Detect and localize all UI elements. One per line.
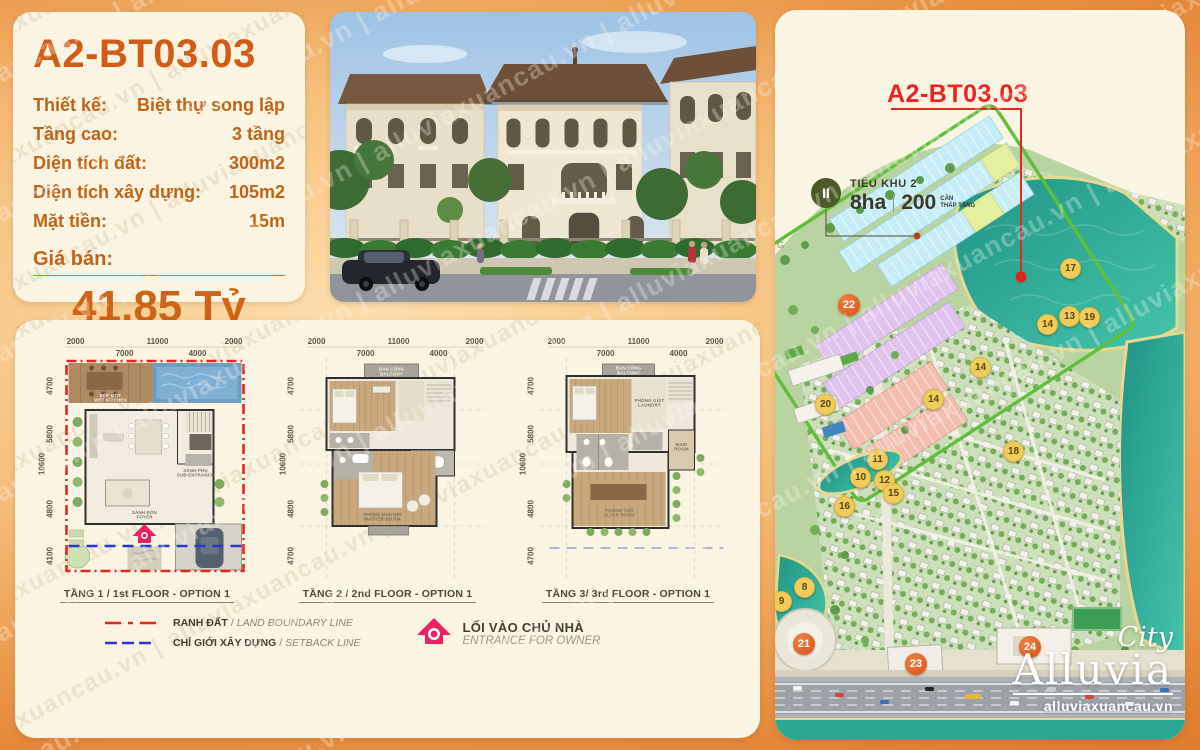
map-callout-label: A2-BT03.03: [887, 80, 1028, 109]
spec-label: Tầng cao:: [33, 120, 118, 149]
floor-3-caption: TẦNG 3/ 3rd FLOOR - OPTION 1: [542, 588, 714, 603]
spec-value: Biệt thự song lập: [137, 91, 285, 120]
zone-units-note: CĂN: [940, 196, 975, 203]
floor-2-caption: TẦNG 2 / 2nd FLOOR - OPTION 1: [299, 588, 477, 603]
svg-text:4700: 4700: [286, 547, 295, 565]
floor-plan-3-block: 2000 11000 2000 7000 4000 4700 5800 1060…: [514, 334, 742, 603]
spec-row-land-area: Diện tích đất: 300m2: [33, 149, 285, 178]
svg-text:4800: 4800: [46, 500, 55, 518]
svg-text:7000: 7000: [597, 349, 615, 358]
svg-text:5800: 5800: [46, 425, 55, 443]
svg-text:11000: 11000: [387, 337, 409, 346]
svg-text:2000: 2000: [548, 337, 566, 346]
legend-separator: /: [231, 617, 234, 629]
plan-legend: RANH ĐẤT / LAND BOUNDARY LINE CHỈ GIỚI X…: [103, 617, 742, 657]
map-marker-18: 18: [1003, 441, 1024, 462]
svg-text:4700: 4700: [527, 547, 536, 565]
spec-label: Mặt tiền:: [33, 207, 107, 236]
svg-text:WET KITCHEN: WET KITCHEN: [94, 398, 127, 403]
map-marker-8: 8: [794, 577, 815, 598]
balcony-top: BAN CÔNG BALCONY: [364, 364, 418, 378]
map-marker-17: 17: [1060, 258, 1081, 279]
svg-text:4100: 4100: [46, 547, 55, 565]
legend-setback-en: SETBACK LINE: [285, 637, 360, 649]
setback-line-sample: [103, 638, 159, 648]
map-marker-16: 16: [834, 496, 855, 517]
floor-plan-3: 2000 11000 2000 7000 4000 4700 5800 1060…: [514, 334, 742, 586]
property-code-title: A2-BT03.03: [33, 32, 285, 77]
logo-name-text: Alluvia: [1013, 650, 1173, 690]
legend-boundary-en: LAND BOUNDARY LINE: [237, 617, 353, 629]
floor-plan-1-block: 2000 11000 2000 7000 4000 4700 5800 1060…: [33, 334, 261, 603]
zone-divider: [893, 194, 894, 212]
svg-text:5800: 5800: [527, 425, 536, 443]
svg-text:4700: 4700: [286, 377, 295, 395]
svg-text:4000: 4000: [189, 349, 207, 358]
map-marker-20: 20: [815, 394, 836, 415]
svg-text:BALCONY: BALCONY: [617, 371, 640, 376]
deck-wet-kitchen: BẾP ƯỚT WET KITCHEN: [69, 363, 153, 403]
svg-text:4000: 4000: [670, 349, 688, 358]
floor-1-caption: TẦNG 1 / 1st FLOOR - OPTION 1: [60, 588, 234, 603]
entrance-arrow-icon: [133, 524, 157, 543]
map-marker-13: 13: [1059, 306, 1080, 327]
svg-text:7000: 7000: [356, 349, 374, 358]
svg-text:FOYER: FOYER: [136, 515, 153, 520]
canal: [775, 719, 1185, 740]
map-marker-23: 23: [905, 653, 927, 675]
svg-text:ROOM: ROOM: [674, 447, 689, 452]
alluvia-city-logo: City Alluvia alluviaxuancau.vn: [1013, 626, 1173, 714]
map-marker-10: 10: [850, 467, 871, 488]
spec-value: 3 tầng: [232, 120, 285, 149]
svg-text:2000: 2000: [465, 337, 483, 346]
pool: [153, 363, 242, 403]
svg-text:ALTAR ROOM: ALTAR ROOM: [604, 513, 635, 518]
zone-roman-numeral: II: [811, 178, 841, 208]
spec-row-design: Thiết kế: Biệt thự song lập: [33, 91, 285, 120]
legend-separator: /: [279, 637, 282, 649]
driveway: [128, 546, 162, 570]
balcony-bottom: [368, 526, 408, 535]
villa-photo-panel: [330, 12, 756, 302]
map-marker-14b: 14: [970, 357, 991, 378]
masterplan-map-panel: A2-BT03.03 G II TIỂU KHU 2 8ha 200 CĂN T…: [775, 10, 1185, 740]
map-marker-14c: 14: [923, 389, 944, 410]
spec-label: Diện tích xây dựng:: [33, 178, 201, 207]
map-marker-22: 22: [838, 294, 860, 316]
map-road-label: G: [777, 240, 784, 250]
callout-dot: [1016, 272, 1027, 283]
svg-text:SUB-ENTRANCE: SUB-ENTRANCE: [177, 473, 215, 478]
map-marker-11: 11: [867, 449, 888, 470]
spec-value: 105m2: [229, 178, 285, 207]
svg-text:7000: 7000: [116, 349, 134, 358]
spec-row-built-area: Diện tích xây dựng: 105m2: [33, 178, 285, 207]
floor-plan-2: 2000 11000 2000 7000 4000 4700 5800 1060…: [274, 334, 502, 586]
spec-value: 15m: [249, 207, 285, 236]
svg-text:4700: 4700: [527, 377, 536, 395]
floor-plan-2-block: 2000 11000 2000 7000 4000 4700 5800 1060…: [274, 334, 502, 603]
svg-text:10600: 10600: [278, 452, 287, 475]
legend-setback: CHỈ GIỚI XÂY DỰNG / SETBACK LINE: [103, 637, 360, 649]
legend-boundary: RANH ĐẤT / LAND BOUNDARY LINE: [103, 617, 360, 629]
price-label: Giá bán:: [33, 248, 285, 276]
floor-plans-panel: alluviaxuancau.vn | alluviaxuancau.vn | …: [15, 320, 760, 738]
legend-entrance-en: ENTRANCE FOR OWNER: [462, 635, 600, 647]
spec-row-frontage: Mặt tiền: 15m: [33, 207, 285, 236]
legend-entrance-vi: LỐI VÀO CHỦ NHÀ: [462, 620, 600, 635]
svg-text:11000: 11000: [147, 337, 169, 346]
floor-plan-1: 2000 11000 2000 7000 4000 4700 5800 1060…: [33, 334, 261, 586]
svg-text:5800: 5800: [286, 425, 295, 443]
zone-area: 8ha: [850, 191, 886, 215]
spec-label: Thiết kế:: [33, 91, 107, 120]
svg-text:10600: 10600: [519, 452, 528, 475]
map-marker-21: 21: [793, 633, 815, 655]
zone-name: TIỂU KHU 2: [850, 178, 975, 190]
property-info-panel: alluviaxuancau.vn | alluviaxuancau.vn | …: [13, 12, 305, 302]
svg-text:4800: 4800: [286, 500, 295, 518]
zone-units-note: THẤP TẦNG: [940, 203, 975, 210]
map-marker-15: 15: [883, 483, 904, 504]
spec-label: Diện tích đất:: [33, 149, 147, 178]
spec-value: 300m2: [229, 149, 285, 178]
svg-text:MASTER BD.RM: MASTER BD.RM: [364, 517, 401, 522]
villa-photo-illustration: [330, 12, 756, 302]
boundary-line-sample: [103, 618, 159, 628]
spec-row-floors: Tầng cao: 3 tầng: [33, 120, 285, 149]
logo-site-url: alluviaxuancau.vn: [1013, 693, 1173, 714]
map-marker-14: 14: [1037, 314, 1058, 335]
svg-text:LAUNDRY: LAUNDRY: [638, 403, 661, 408]
entrance-owner-icon: [416, 617, 452, 649]
zone-badge: II TIỂU KHU 2 8ha 200 CĂN THẤP TẦNG: [811, 178, 975, 215]
svg-text:2000: 2000: [225, 337, 243, 346]
house-body: SẢNH PHỤ SUB-ENTRANCE SẢNH ĐÓN FOYER: [86, 410, 215, 524]
svg-text:2000: 2000: [307, 337, 325, 346]
legend-boundary-vi: RANH ĐẤT: [173, 617, 228, 629]
legend-setback-vi: CHỈ GIỚI XÂY DỰNG: [173, 637, 276, 649]
watermark-text: alluviaxuancau.vn | alluviaxuancau.vn | …: [0, 0, 1200, 7]
svg-text:4800: 4800: [527, 500, 536, 518]
center-villa: [482, 47, 668, 247]
svg-text:2000: 2000: [67, 337, 85, 346]
svg-text:BALCONY: BALCONY: [379, 372, 402, 377]
svg-text:11000: 11000: [628, 337, 650, 346]
floor2-body: PHÒNG MASTER MASTER BD.RM: [326, 378, 454, 526]
svg-text:2000: 2000: [706, 337, 724, 346]
svg-text:4000: 4000: [429, 349, 447, 358]
svg-text:10600: 10600: [38, 452, 47, 475]
map-marker-19: 19: [1079, 307, 1100, 328]
legend-entrance: LỐI VÀO CHỦ NHÀ ENTRANCE FOR OWNER: [416, 617, 600, 649]
zone-units: 200: [901, 191, 936, 215]
svg-text:4700: 4700: [46, 377, 55, 395]
